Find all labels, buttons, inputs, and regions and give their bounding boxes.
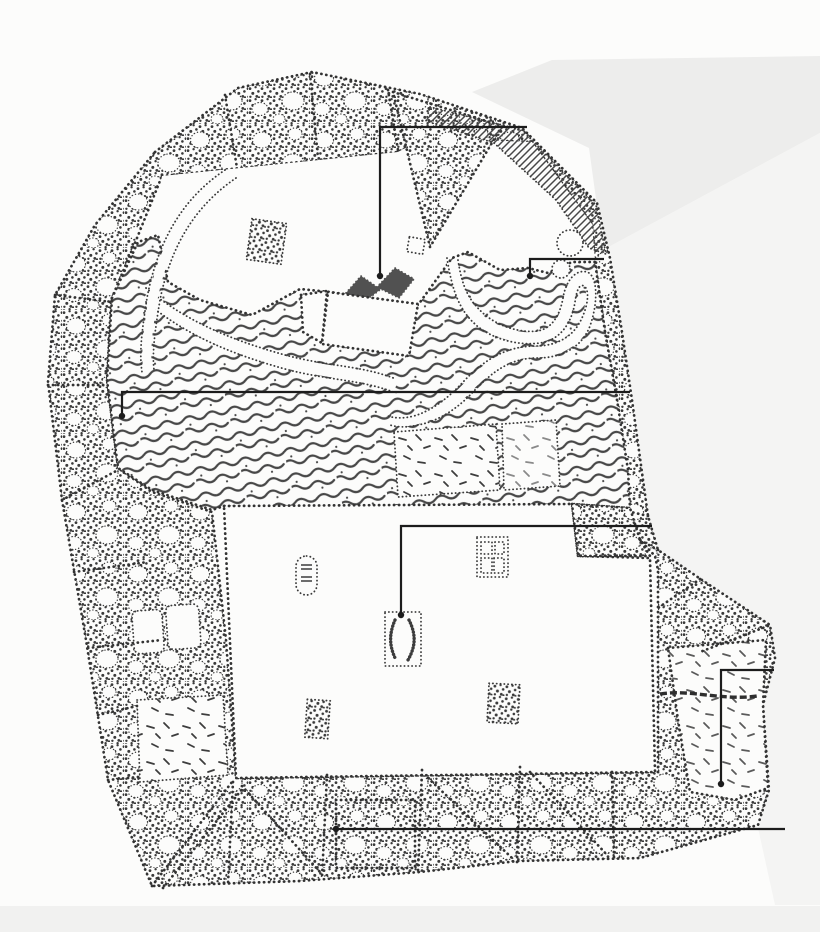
callout-dot-4 [398, 612, 404, 618]
west-gravel-cell-scatter [137, 695, 228, 782]
garden-plan-drawing [0, 0, 820, 932]
callout-dot-6 [333, 826, 339, 832]
clearing-2-scatter [502, 420, 560, 490]
callout-dot-2 [527, 273, 533, 279]
callout-dot-1 [377, 273, 383, 279]
central-court [224, 504, 655, 778]
lakeside-tree-small [552, 260, 570, 278]
southwest-plot [305, 699, 331, 739]
callout-dot-5 [718, 781, 724, 787]
callout-dot-3 [119, 413, 125, 419]
lakeside-tree-large [557, 230, 583, 256]
twin-terrace-west [132, 609, 165, 654]
twin-terrace-east [165, 604, 201, 650]
island-grove [246, 219, 286, 264]
garden-plan-page [0, 0, 820, 932]
southeast-plot [487, 683, 520, 724]
scan-shadow-bottom-strip [0, 906, 820, 932]
rockery-clearings [394, 420, 560, 497]
clearing-1-scatter [394, 424, 500, 497]
